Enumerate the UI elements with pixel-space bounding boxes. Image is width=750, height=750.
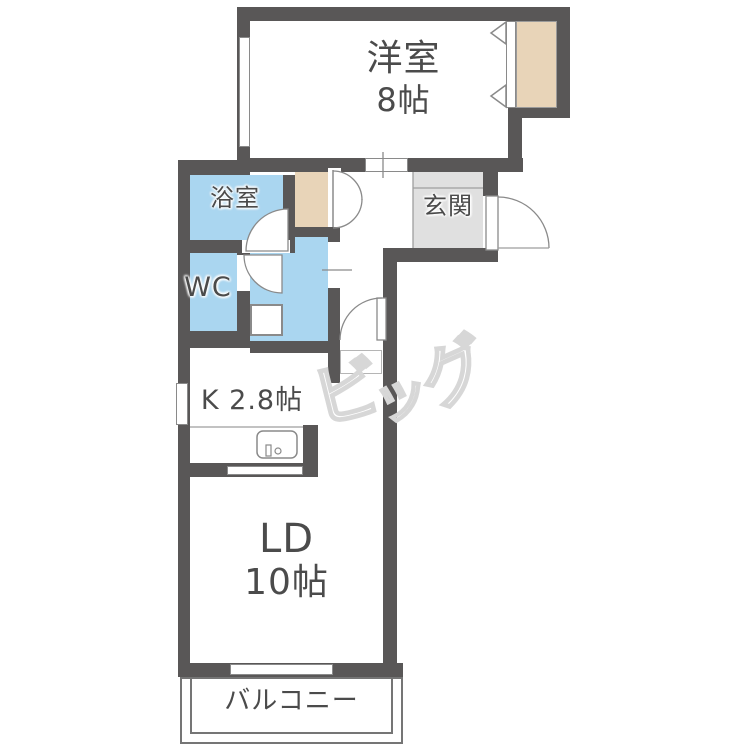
hall-closet-door-arc-icon — [333, 199, 362, 228]
living-dining-size: 10帖 — [190, 564, 383, 602]
kitchen-label: K 2.8帖 — [178, 387, 326, 415]
entrance-label: 玄関 — [413, 194, 483, 219]
front-door-leaf — [486, 196, 498, 250]
toilet-label: WC — [178, 274, 238, 302]
bath-door-swing-icon — [246, 209, 288, 251]
front-door-swing-arc — [498, 197, 549, 248]
balcony-label: バルコニー — [190, 688, 393, 715]
western-room-size: 8帖 — [250, 84, 557, 118]
western-room-label: 洋室 — [250, 40, 557, 78]
faucet-icon — [266, 445, 271, 456]
hall-closet-door-arc-icon — [333, 171, 362, 200]
bath-label: 浴室 — [185, 186, 285, 211]
toilet-door-swing-icon — [244, 255, 282, 293]
drain-icon — [275, 448, 281, 454]
kitchen-door-swing-arc — [340, 298, 382, 340]
kitchen-door-leaf — [377, 298, 386, 340]
living-dining-label: LD — [190, 518, 383, 560]
floor-plan: 洋室 8帖 浴室 WC 玄関 K 2.8帖 LD 10帖 バルコニー ビ ッ グ — [0, 0, 750, 750]
